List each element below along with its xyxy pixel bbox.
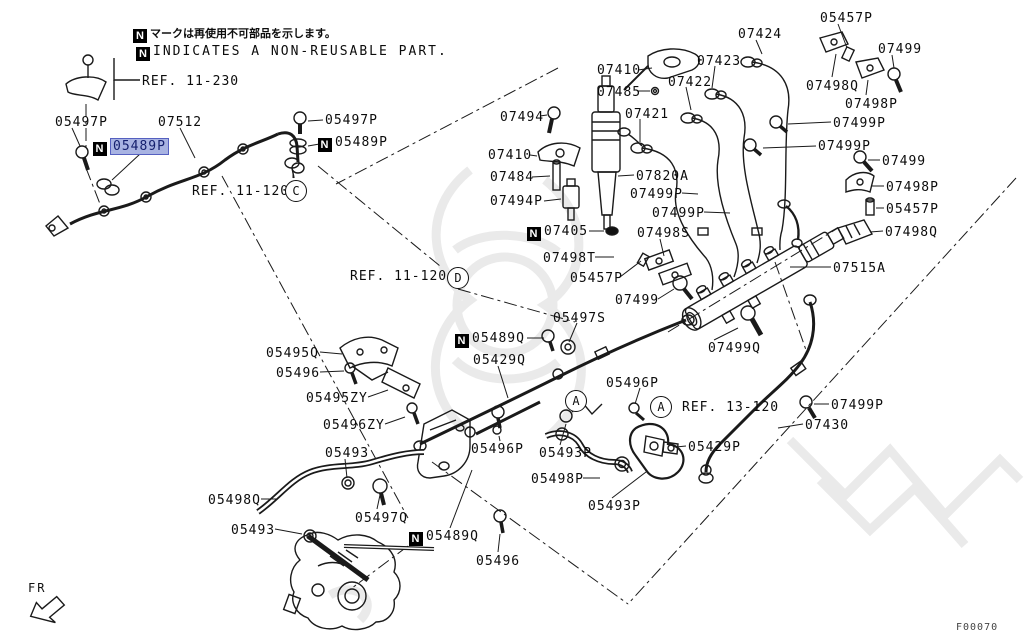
part-label-05429Q[interactable]: 05429Q: [473, 353, 526, 368]
part-number: 05429P: [688, 440, 741, 455]
part-number: 05493P: [539, 446, 592, 461]
part-label-07498P[interactable]: 07498P: [886, 180, 939, 195]
part-label-07494P[interactable]: 07494P: [490, 194, 543, 209]
part-label-07499[interactable]: 07499: [882, 154, 926, 169]
part-label-05489P[interactable]: N05489P: [318, 135, 388, 152]
note-jp-text: マークは再使用不可部品を示します。: [150, 28, 336, 40]
part-label-05429P[interactable]: 05429P: [688, 440, 741, 455]
part-number: 05489P: [110, 138, 169, 155]
part-number: 05489P: [335, 135, 388, 150]
part-number: 05498P: [531, 472, 584, 487]
part-number: 05496ZY: [323, 418, 385, 433]
part-number: 07410: [488, 148, 532, 163]
hose-05498Q: [258, 452, 424, 542]
part-number: 05497P: [55, 115, 108, 130]
part-number: 07515A: [833, 261, 886, 276]
part-label-05489P[interactable]: N05489P: [93, 139, 169, 156]
part-number: 07512: [158, 115, 202, 130]
part-label-07499Q[interactable]: 07499Q: [708, 341, 761, 356]
part-label-07424[interactable]: 07424: [738, 27, 782, 42]
non-reusable-badge-icon: N: [409, 532, 423, 546]
part-label-05497P[interactable]: 05497P: [325, 113, 378, 128]
part-number: 05429Q: [473, 353, 526, 368]
ref-label-11-230: REF. 11-230: [142, 74, 239, 89]
part-number: 05457P: [886, 202, 939, 217]
ref-label-11-120: REF. 11-120: [192, 184, 289, 199]
part-number: 07422: [668, 75, 712, 90]
part-number: 07498Q: [806, 79, 859, 94]
part-number: 05457P: [570, 271, 623, 286]
part-number: 05489Q: [426, 529, 479, 544]
part-label-05496ZY[interactable]: 05496ZY: [323, 418, 385, 433]
part-number: 07499P: [652, 206, 705, 221]
part-number: 07499Q: [708, 341, 761, 356]
part-label-07498T[interactable]: 07498T: [543, 251, 596, 266]
part-number: 07410: [597, 63, 641, 78]
part-label-07499P[interactable]: 07499P: [833, 116, 886, 131]
part-label-07498S[interactable]: 07498S: [637, 226, 690, 241]
bracket-part-ref11-230: [66, 55, 140, 100]
fr-label: FR: [28, 581, 46, 595]
part-number: 07498P: [845, 97, 898, 112]
part-number: 05496: [476, 554, 520, 569]
part-number: 07820A: [636, 169, 689, 184]
part-label-05496P[interactable]: 05496P: [471, 442, 524, 457]
part-number: 07498S: [637, 226, 690, 241]
ref-callout-C: C: [285, 180, 307, 202]
part-number: 07498T: [543, 251, 596, 266]
part-label-05493[interactable]: 05493: [325, 446, 369, 461]
part-label-07499P[interactable]: 07499P: [818, 139, 871, 154]
part-number: 07494: [500, 110, 544, 125]
part-label-07499P[interactable]: 07499P: [831, 398, 884, 413]
part-label-05498P[interactable]: 05498P: [531, 472, 584, 487]
part-label-05457P[interactable]: 05457P: [886, 202, 939, 217]
ref-label-11-120: REF. 11-120: [350, 269, 447, 284]
part-label-05496[interactable]: 05496: [276, 366, 320, 381]
part-label-07499P[interactable]: 07499P: [630, 187, 683, 202]
part-label-05493P[interactable]: 05493P: [539, 446, 592, 461]
part-number: 07499: [615, 293, 659, 308]
part-number: 07499: [878, 42, 922, 57]
non-reusable-badge-icon: N: [455, 334, 469, 348]
part-label-07498Q[interactable]: 07498Q: [806, 79, 859, 94]
part-label-07499P[interactable]: 07499P: [652, 206, 705, 221]
ref-callout-A: A: [650, 396, 672, 418]
part-number: 05493P: [588, 499, 641, 514]
part-label-05493P[interactable]: 05493P: [588, 499, 641, 514]
part-label-07485[interactable]: 07485: [597, 85, 641, 100]
part-label-07499[interactable]: 07499: [878, 42, 922, 57]
part-number: 05497P: [325, 113, 378, 128]
part-number: 07421: [625, 107, 669, 122]
part-label-07422[interactable]: 07422: [668, 75, 712, 90]
non-reusable-badge-icon: N: [136, 47, 150, 61]
parts-diagram: Nマークは再使用不可部品を示します。 NINDICATES A NON-REUS…: [0, 0, 1024, 637]
part-number: 05496P: [471, 442, 524, 457]
part-label-07512[interactable]: 07512: [158, 115, 202, 130]
part-number: 05495ZY: [306, 391, 368, 406]
part-label-05498Q[interactable]: 05498Q: [208, 493, 261, 508]
part-label-07515A[interactable]: 07515A: [833, 261, 886, 276]
part-number: 05457P: [820, 11, 873, 26]
part-label-07498Q[interactable]: 07498Q: [885, 225, 938, 240]
part-number: 07485: [597, 85, 641, 100]
part-label-05489Q[interactable]: N05489Q: [409, 529, 479, 546]
part-label-05495Q[interactable]: 05495Q: [266, 346, 319, 361]
figure-code: F00070: [956, 622, 998, 633]
part-label-07421[interactable]: 07421: [625, 107, 669, 122]
non-reusable-badge-icon: N: [318, 138, 332, 152]
part-number: 07430: [805, 418, 849, 433]
part-label-07494[interactable]: 07494: [500, 110, 544, 125]
part-number: 05495Q: [266, 346, 319, 361]
part-number: 07499P: [833, 116, 886, 131]
part-number: 05497S: [553, 311, 606, 326]
part-label-07499[interactable]: 07499: [615, 293, 659, 308]
part-label-05457P[interactable]: 05457P: [570, 271, 623, 286]
part-number: 05498Q: [208, 493, 261, 508]
non-reusable-badge-icon: N: [93, 142, 107, 156]
part-number: 05493: [231, 523, 275, 538]
part-label-07423[interactable]: 07423: [697, 54, 741, 69]
part-number: 05493: [325, 446, 369, 461]
part-label-07410[interactable]: 07410: [597, 63, 641, 78]
part-label-07410[interactable]: 07410: [488, 148, 532, 163]
ref-callout-A: A: [565, 390, 587, 412]
part-number: 07499P: [818, 139, 871, 154]
part-label-05457P[interactable]: 05457P: [820, 11, 873, 26]
non-reusable-badge-icon: N: [527, 227, 541, 241]
part-number: 05496: [276, 366, 320, 381]
part-number: 07423: [697, 54, 741, 69]
part-number: 07484: [490, 170, 534, 185]
part-label-05496[interactable]: 05496: [476, 554, 520, 569]
part-number: 07498P: [886, 180, 939, 195]
note-en-text: INDICATES A NON-REUSABLE PART.: [153, 44, 448, 59]
diagram-art: [0, 0, 1024, 637]
part-label-05493[interactable]: 05493: [231, 523, 275, 538]
ref-callout-D: D: [447, 267, 469, 289]
part-label-05495ZY[interactable]: 05495ZY: [306, 391, 368, 406]
part-label-07405[interactable]: N07405: [527, 224, 588, 241]
part-number: 07499: [882, 154, 926, 169]
note-en: NINDICATES A NON-REUSABLE PART.: [136, 40, 448, 61]
part-label-05489Q[interactable]: N05489Q: [455, 331, 525, 348]
front-direction-arrow: [30, 595, 64, 623]
part-number: 05496P: [606, 376, 659, 391]
part-label-07498P[interactable]: 07498P: [845, 97, 898, 112]
part-label-05497Q[interactable]: 05497Q: [355, 511, 408, 526]
part-label-07484[interactable]: 07484: [490, 170, 534, 185]
part-number: 07498Q: [885, 225, 938, 240]
part-number: 07499P: [630, 187, 683, 202]
part-number: 07424: [738, 27, 782, 42]
part-label-05497P[interactable]: 05497P: [55, 115, 108, 130]
part-label-05497S[interactable]: 05497S: [553, 311, 606, 326]
part-number: 07494P: [490, 194, 543, 209]
part-label-07820A[interactable]: 07820A: [636, 169, 689, 184]
part-number: 07499P: [831, 398, 884, 413]
part-label-05496P[interactable]: 05496P: [606, 376, 659, 391]
ref-label-13-120: REF. 13-120: [682, 400, 779, 415]
part-number: 05497Q: [355, 511, 408, 526]
part-label-07430[interactable]: 07430: [805, 418, 849, 433]
part-number: 05489Q: [472, 331, 525, 346]
part-number: 07405: [544, 224, 588, 239]
